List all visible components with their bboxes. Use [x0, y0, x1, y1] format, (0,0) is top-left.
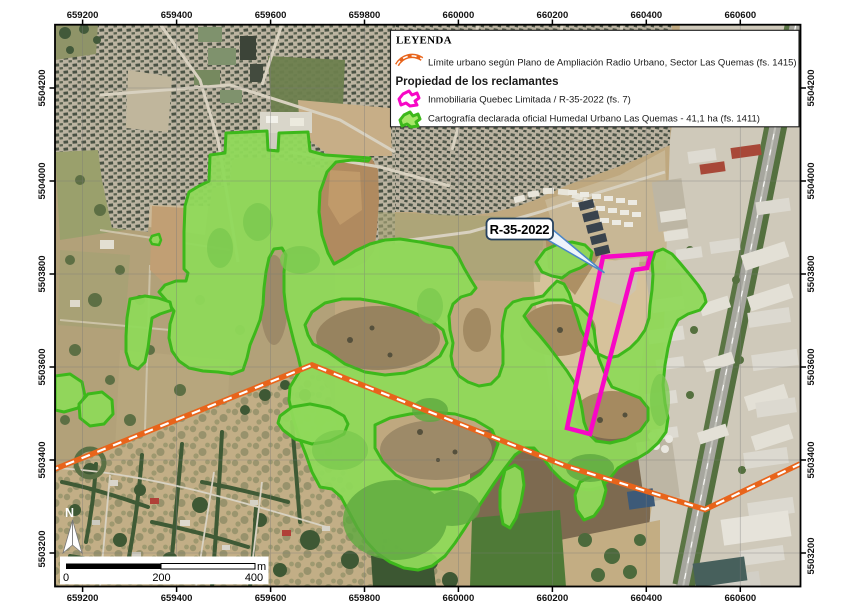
svg-text:660200: 660200 [537, 593, 569, 604]
svg-text:659800: 659800 [349, 10, 381, 21]
svg-text:5503200: 5503200 [37, 531, 48, 568]
svg-text:5503800: 5503800 [806, 256, 817, 293]
svg-text:LEYENDA: LEYENDA [396, 35, 452, 47]
svg-text:659400: 659400 [161, 593, 193, 604]
svg-text:660200: 660200 [537, 10, 569, 21]
svg-text:659200: 659200 [67, 593, 99, 604]
svg-text:N: N [65, 506, 74, 520]
svg-text:5503200: 5503200 [806, 538, 817, 575]
svg-text:5503600: 5503600 [806, 349, 817, 386]
svg-text:660400: 660400 [630, 593, 662, 604]
svg-text:400: 400 [245, 572, 263, 584]
svg-text:659600: 659600 [255, 593, 287, 604]
svg-text:5503400: 5503400 [37, 442, 48, 479]
svg-text:5504200: 5504200 [806, 70, 817, 107]
svg-text:5504200: 5504200 [37, 70, 48, 107]
svg-text:660600: 660600 [724, 10, 756, 21]
svg-text:659600: 659600 [255, 10, 287, 21]
svg-text:660600: 660600 [724, 593, 756, 604]
svg-text:5503600: 5503600 [37, 349, 48, 386]
svg-text:659200: 659200 [67, 10, 99, 21]
svg-text:R-35-2022: R-35-2022 [490, 222, 550, 237]
svg-text:Cartografía declarada oficial: Cartografía declarada oficial Humedal Ur… [428, 114, 760, 125]
svg-text:200: 200 [152, 572, 170, 584]
svg-text:Límite urbano según Plano de A: Límite urbano según Plano de Ampliación … [428, 58, 797, 69]
svg-text:660400: 660400 [630, 10, 662, 21]
svg-text:660000: 660000 [443, 593, 475, 604]
svg-text:660000: 660000 [443, 10, 475, 21]
svg-text:5503800: 5503800 [37, 256, 48, 293]
svg-text:5504000: 5504000 [806, 163, 817, 200]
svg-text:0: 0 [63, 572, 69, 584]
svg-text:5503400: 5503400 [806, 442, 817, 479]
svg-text:Inmobiliaria Quebec Limitada /: Inmobiliaria Quebec Limitada / R-35-2022… [428, 95, 631, 106]
svg-text:659400: 659400 [161, 10, 193, 21]
svg-text:5504000: 5504000 [37, 163, 48, 200]
svg-text:659800: 659800 [349, 593, 381, 604]
svg-text:Propiedad de los reclamantes: Propiedad de los reclamantes [396, 76, 559, 88]
